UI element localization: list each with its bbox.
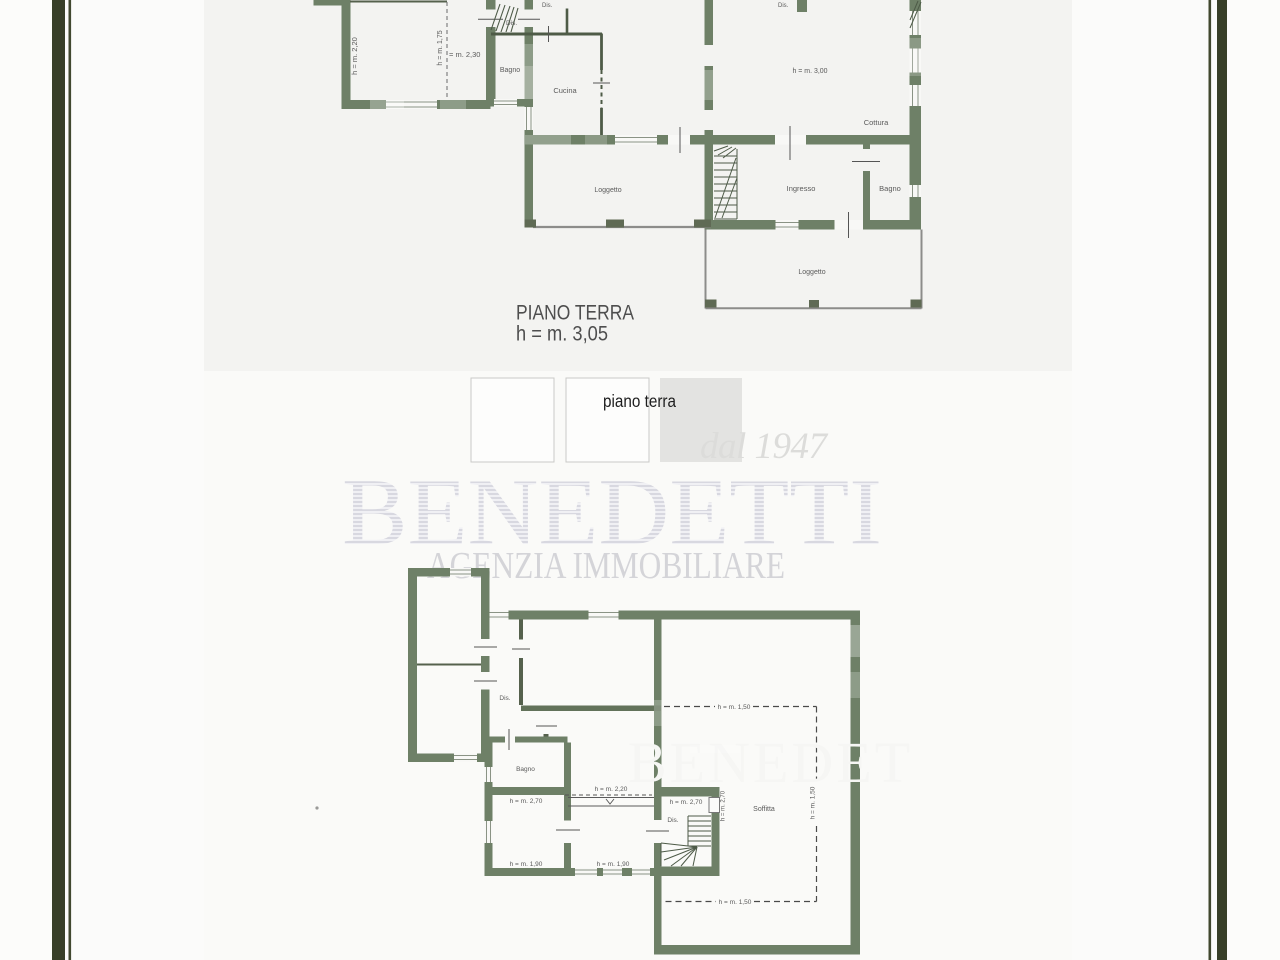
svg-text:Cottura: Cottura — [864, 118, 889, 127]
svg-text:Cucina: Cucina — [553, 86, 577, 95]
svg-text:piano terra: piano terra — [603, 391, 676, 411]
svg-text:h = m. 2,70: h = m. 2,70 — [510, 798, 543, 805]
svg-text:h = m. 3,05: h = m. 3,05 — [516, 323, 608, 346]
svg-text:Bagno: Bagno — [500, 67, 520, 74]
svg-text:AGENZIA IMMOBILIARE: AGENZIA IMMOBILIARE — [427, 545, 785, 587]
svg-text:BENEDET: BENEDET — [628, 730, 913, 795]
svg-text:Loggetto: Loggetto — [594, 187, 621, 194]
svg-text:Loggetto: Loggetto — [798, 269, 825, 276]
svg-text:Dis.: Dis. — [506, 20, 517, 27]
svg-text:h = m. 2,20: h = m. 2,20 — [595, 786, 628, 793]
svg-text:h = m. 1,90: h = m. 1,90 — [510, 861, 543, 868]
svg-text:Dis.: Dis. — [667, 817, 678, 824]
svg-text:Dis.: Dis. — [778, 3, 789, 9]
svg-text:Bagno: Bagno — [516, 766, 535, 773]
svg-text:h = m. 2,20: h = m. 2,20 — [350, 37, 359, 75]
svg-text:= m. 2,30: = m. 2,30 — [449, 50, 480, 59]
svg-text:h = m. 1,50: h = m. 1,50 — [719, 899, 752, 906]
svg-text:Dis.: Dis. — [499, 695, 510, 702]
svg-text:h = m. 1,75: h = m. 1,75 — [437, 30, 444, 65]
svg-text:h = m. 1,90: h = m. 1,90 — [597, 861, 630, 868]
svg-text:Bagno: Bagno — [879, 184, 901, 193]
svg-text:h = m. 2,70: h = m. 2,70 — [670, 799, 703, 806]
svg-text:PIANO TERRA: PIANO TERRA — [516, 301, 635, 325]
svg-text:h = m. 3,00: h = m. 3,00 — [793, 66, 828, 75]
svg-text:Dis.: Dis. — [542, 3, 553, 9]
svg-text:Soffitta: Soffitta — [753, 806, 775, 813]
svg-text:h = m. 1,50: h = m. 1,50 — [718, 704, 751, 711]
svg-text:Ingresso: Ingresso — [787, 184, 816, 193]
